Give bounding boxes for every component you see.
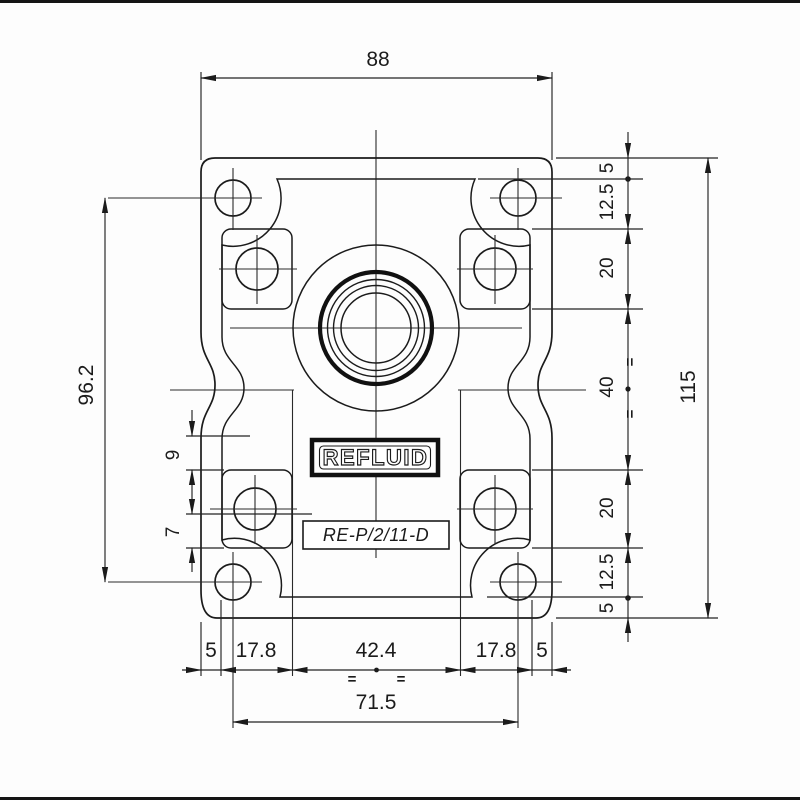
dim-label-bottom-5-left: 5 <box>205 639 217 662</box>
symmetry-mark-right-top: = <box>622 357 639 366</box>
dim-label-bottom-42-4: 42.4 <box>356 639 397 662</box>
dim-bottom-chain: 5 17.8 42.4 17.8 5 = = <box>182 600 571 688</box>
dim-label-right-20-bottom: 20 <box>597 497 618 518</box>
model-label: RE-P/2/11-D <box>303 521 449 549</box>
frame-top-border <box>0 0 800 3</box>
dim-label-71-5: 71.5 <box>356 691 397 714</box>
symmetry-mark-bottom-left: = <box>348 671 357 688</box>
dim-label-bottom-17-8-right: 17.8 <box>476 639 517 662</box>
dim-label-88: 88 <box>366 48 389 71</box>
technical-drawing-page: 88 115 5 12.5 20 40 20 12.5 5 = = <box>0 0 800 800</box>
dim-label-115: 115 <box>677 370 700 403</box>
symmetry-mark-right-bottom: = <box>622 409 639 418</box>
dim-label-right-5-top: 5 <box>597 163 618 174</box>
dim-label-right-20-top: 20 <box>597 257 618 278</box>
dim-label-bottom-5-right: 5 <box>536 639 548 662</box>
dim-label-9: 9 <box>163 450 184 461</box>
dim-label-right-12-5-bottom: 12.5 <box>597 554 618 591</box>
brand-logo-text: REFLUID <box>323 445 429 470</box>
dim-label-96-2: 96.2 <box>75 365 98 406</box>
dim-label-bottom-17-8-left: 17.8 <box>236 639 277 662</box>
symmetry-mark-bottom-right: = <box>397 671 406 688</box>
model-label-text: RE-P/2/11-D <box>323 525 429 545</box>
dim-label-right-12-5-top: 12.5 <box>597 184 618 221</box>
brand-logo: REFLUID <box>312 440 438 475</box>
dim-bottom-hole-spacing: 71.5 <box>233 691 518 722</box>
centerlines <box>170 130 586 676</box>
dim-label-right-5-bottom: 5 <box>597 603 618 614</box>
dim-overall-height: 115 <box>556 158 718 618</box>
dim-label-7: 7 <box>163 527 184 538</box>
dim-label-right-40: 40 <box>597 376 618 397</box>
pump-flange-drawing: 88 115 5 12.5 20 40 20 12.5 5 = = <box>0 0 800 800</box>
dim-left-height: 96.2 <box>75 198 105 582</box>
